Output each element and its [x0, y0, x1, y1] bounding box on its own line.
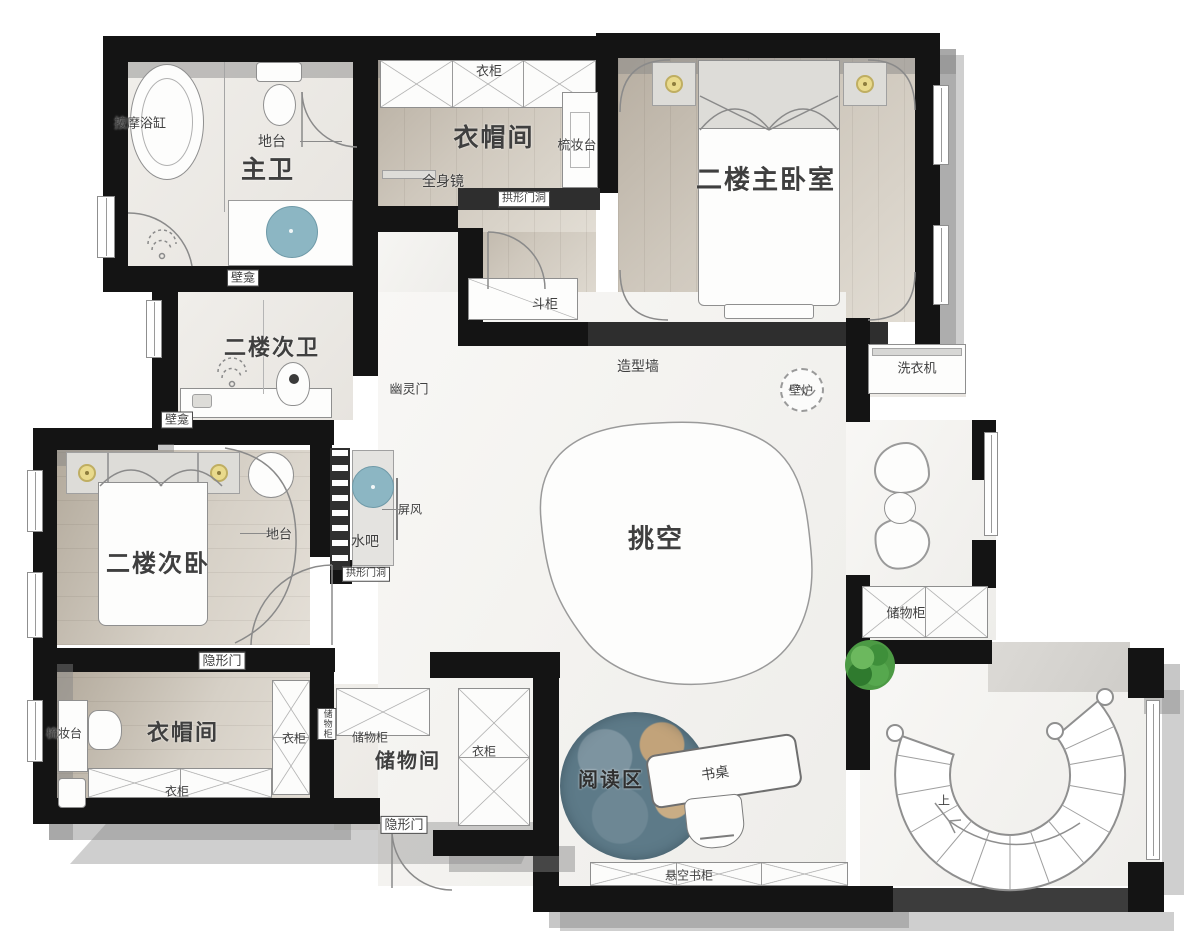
label-stairs-up: 上 — [938, 792, 950, 809]
door-arc-storage — [392, 830, 452, 890]
label-dressing-table: 梳妆台 — [557, 135, 596, 154]
label-floating-bookcase: 悬空书柜 — [665, 867, 713, 884]
label-screen: 屏风 — [398, 501, 422, 518]
label-full-length-mirror: 全身镜 — [422, 171, 464, 191]
label-cloakroom-2: 衣帽间 — [147, 715, 219, 747]
door-arc-master-bath — [302, 92, 357, 147]
floor-plan: 按摩浴缸 地台 主卫 壁龛 衣柜 衣帽间 梳妆台 全身镜 拱形门洞 二楼主卧室 … — [0, 0, 1200, 931]
label-dressing-table-2: 梳妆台 — [46, 725, 82, 742]
label-master-bath-platform: 地台 — [258, 131, 286, 151]
master-corner-tr — [868, 60, 915, 110]
label-wardrobe-4: 衣柜 — [472, 743, 496, 760]
label-second-bedroom-platform: 地台 — [266, 524, 292, 543]
label-wardrobe: 衣柜 — [476, 61, 502, 80]
label-wardrobe-3: 衣柜 — [165, 783, 189, 800]
spiral-staircase — [887, 689, 1125, 890]
label-chest-of-drawers: 斗柜 — [532, 294, 558, 313]
label-feature-wall: 造型墙 — [617, 356, 659, 376]
label-arched-opening: 拱形门洞 — [498, 191, 550, 207]
label-void: 挑空 — [628, 519, 684, 556]
label-master-bath: 主卫 — [241, 150, 295, 186]
label-second-bath: 二楼次卫 — [224, 330, 320, 362]
label-water-bar-arched-opening: 拱形门洞 — [342, 567, 390, 582]
master-corner-bl — [620, 270, 668, 320]
label-wardrobe-2: 衣柜 — [282, 730, 306, 747]
label-massage-tub: 按摩浴缸 — [114, 113, 166, 132]
label-master-bath-niche: 壁龛 — [227, 270, 259, 287]
label-second-bedroom: 二楼次卧 — [106, 544, 210, 579]
label-hidden-door-2: 隐形门 — [380, 816, 427, 834]
leader-platform — [300, 141, 342, 142]
platform-curve — [225, 448, 296, 643]
label-water-bar: 水吧 — [351, 531, 379, 551]
label-hidden-door: 隐形门 — [198, 652, 245, 670]
bed-canopy-master — [700, 96, 838, 130]
sprinkler-icon-2 — [218, 358, 246, 387]
label-ghost-door: 幽灵门 — [389, 379, 428, 398]
sprinkler-icon — [148, 230, 176, 259]
label-cloakroom: 衣帽间 — [453, 118, 534, 154]
door-arc-master-entry — [488, 232, 545, 289]
master-corner-tl — [620, 60, 670, 112]
label-fireplace: 壁炉 — [789, 382, 813, 399]
label-washing-machine: 洗衣机 — [897, 358, 936, 377]
label-reading-area: 阅读区 — [578, 764, 644, 793]
bed-canopy-second — [100, 470, 222, 486]
label-storage-cabinet-3: 储物柜 — [317, 708, 336, 740]
label-storage-cabinet: 储物柜 — [886, 603, 925, 622]
label-master-bedroom: 二楼主卧室 — [696, 160, 836, 197]
label-storage-cabinet-2: 储物柜 — [352, 729, 388, 746]
label-storage-room: 储物间 — [375, 745, 441, 774]
label-second-bath-niche: 壁龛 — [161, 412, 193, 429]
master-corner-br — [868, 272, 915, 320]
